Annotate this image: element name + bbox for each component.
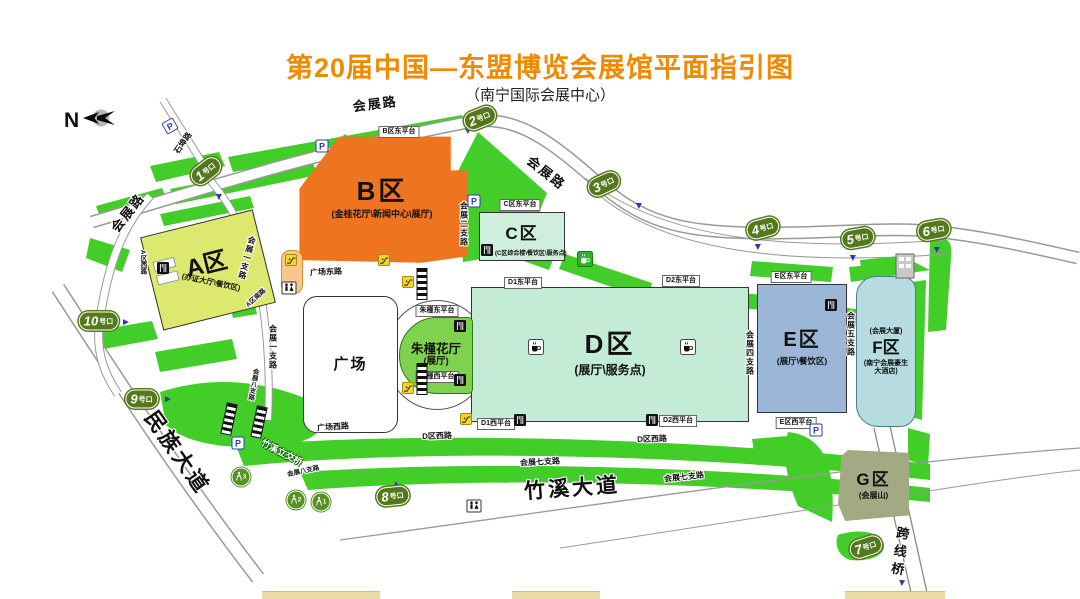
escalator-icon <box>285 254 297 266</box>
zone-f: (会展大厦) F区 (南宁会展豪生大酒店) <box>856 276 916 427</box>
gate-suffix: 号口 <box>139 394 153 404</box>
plaza: 广场 <box>303 296 398 433</box>
coffee-icon <box>528 339 544 355</box>
direction-arrow-icon: ► <box>121 318 131 328</box>
restaurant-icon <box>825 299 837 311</box>
gate-suffix: 号口 <box>599 175 616 190</box>
gate-number: 9 <box>130 392 137 407</box>
restaurant-icon <box>157 262 169 274</box>
direction-arrow-icon: ► <box>752 242 762 252</box>
gate-9: 9号口 <box>125 390 158 409</box>
svg-text:P: P <box>471 197 477 207</box>
road-label: A区西路 <box>137 250 147 274</box>
toilet-icon <box>282 282 297 295</box>
building-icon <box>895 253 915 279</box>
platform-label: D1东平台 <box>504 277 542 289</box>
escalator-icon <box>378 254 390 266</box>
zone-b-label: B区 <box>357 178 408 205</box>
expo-map: 第20届中国—东盟博览会展馆平面指引图 （南宁国际会展中心） N A区 (办证大… <box>0 0 1080 599</box>
zone-d-sublabel: (展厅\服务点) <box>574 364 645 378</box>
toilet-icon <box>467 500 482 513</box>
road-label: 会展七支路 <box>520 455 561 468</box>
pedestrian-gate-number: 1 <box>323 499 327 506</box>
zone-c-sublabel: (C区综合楼\餐饮区\服务点) <box>495 251 567 258</box>
compass-north-label: N <box>64 109 79 133</box>
gate-suffix: 号口 <box>758 220 774 233</box>
parking-icon: P <box>316 140 329 153</box>
pedestrian-gate-1: 1 <box>312 493 331 512</box>
parking-icon: P <box>810 424 823 437</box>
gate-10: 10号口 <box>79 312 119 331</box>
page-subtitle: （南宁国际会展中心） <box>0 84 1080 105</box>
pedestrian-icon <box>236 468 243 486</box>
gate-suffix: 号口 <box>861 539 877 553</box>
gate-suffix: 号口 <box>99 316 113 326</box>
road-label: 广场东路 <box>310 266 343 279</box>
restaurant-icon <box>481 244 493 256</box>
platform-label: C区东平台 <box>499 199 540 211</box>
zone-f-top-sublabel: (会展大厦) <box>870 326 903 336</box>
legend-strip <box>845 591 945 599</box>
pedestrian-gate-2: 2 <box>287 491 306 510</box>
pedestrian-gate-number: 3 <box>243 474 247 481</box>
svg-text:P: P <box>235 439 241 449</box>
restaurant-icon <box>454 374 466 386</box>
restaurant-icon <box>646 414 658 426</box>
zone-b-sublabel: (金桂花厅\新闻中心\展厅) <box>332 209 433 219</box>
direction-arrow-icon: ► <box>847 253 857 263</box>
gate-suffix: 号口 <box>389 490 404 501</box>
svg-text:P: P <box>813 426 819 436</box>
parking-icon: P <box>468 195 481 208</box>
svg-text:P: P <box>319 142 325 152</box>
page-title: 第20届中国—东盟博览会展馆平面指引图 <box>0 46 1080 85</box>
parking-icon: P <box>232 437 245 450</box>
escalator-icon <box>460 413 472 425</box>
compass: N <box>64 108 116 133</box>
platform-label: E区东平台 <box>771 271 812 283</box>
legend-strip <box>262 591 380 599</box>
platform-label: D2西平台 <box>659 415 697 427</box>
coffee-green-icon <box>577 251 593 267</box>
direction-arrow-icon: ► <box>163 395 173 405</box>
zone-c-label: C区 <box>505 225 538 243</box>
zone-e-sublabel: (展厅\餐饮区) <box>777 357 828 367</box>
plaza-label: 广场 <box>333 357 367 373</box>
road-label: D区西路 <box>637 433 667 445</box>
platform-label: 朱槿东平台 <box>416 305 459 317</box>
zone-g-label: G区 <box>856 471 890 489</box>
zone-d: D区 (展厅\服务点) <box>471 287 749 422</box>
road-label: 会展一支路 <box>268 325 279 370</box>
gate-suffix: 号口 <box>475 109 492 124</box>
escalator-icon <box>402 382 414 394</box>
road-label: 会展五支路 <box>846 312 857 357</box>
direction-arrow-icon: ► <box>896 578 907 589</box>
pedestrian-gate-3: 3 <box>232 468 251 487</box>
zone-f-bottom-sublabel: (南宁会展豪生大酒店) <box>861 360 911 378</box>
zhujin-label: 朱槿花厅 <box>411 343 461 356</box>
direction-arrow-icon: ► <box>633 201 643 211</box>
road-label: D区西路 <box>422 430 452 442</box>
compass-arrow-icon <box>82 108 116 133</box>
zone-f-label: F区 <box>872 339 899 357</box>
escalator-icon <box>402 276 414 288</box>
gate-number: 10 <box>84 314 98 329</box>
restaurant-icon <box>454 320 466 332</box>
zone-g: G区 (会展山) <box>838 450 909 521</box>
zone-g-sublabel: (会展山) <box>859 491 888 500</box>
direction-arrow-icon: ► <box>213 192 223 202</box>
coffee-icon <box>680 339 696 355</box>
pedestrian-icon <box>316 493 323 511</box>
gate-suffix: 号口 <box>930 223 946 235</box>
crosswalk-icon <box>417 268 428 300</box>
zone-e-label: E区 <box>783 330 820 351</box>
zone-d-label: D区 <box>585 331 636 358</box>
direction-arrow-icon: ► <box>931 245 941 255</box>
road-label: 会展四支路 <box>745 331 756 376</box>
road-label: 广场西路 <box>317 420 350 433</box>
platform-label: D1西平台 <box>477 418 515 430</box>
platform-label: D2东平台 <box>662 275 700 287</box>
pedestrian-icon <box>291 491 298 509</box>
legend-strip <box>512 591 600 599</box>
restaurant-icon <box>514 414 526 426</box>
road-label: 会展二支路 <box>459 202 470 247</box>
crosswalk-icon <box>417 363 428 395</box>
gate-suffix: 号口 <box>854 231 870 243</box>
pedestrian-gate-number: 2 <box>298 497 302 504</box>
platform-label: B区东平台 <box>378 126 419 138</box>
